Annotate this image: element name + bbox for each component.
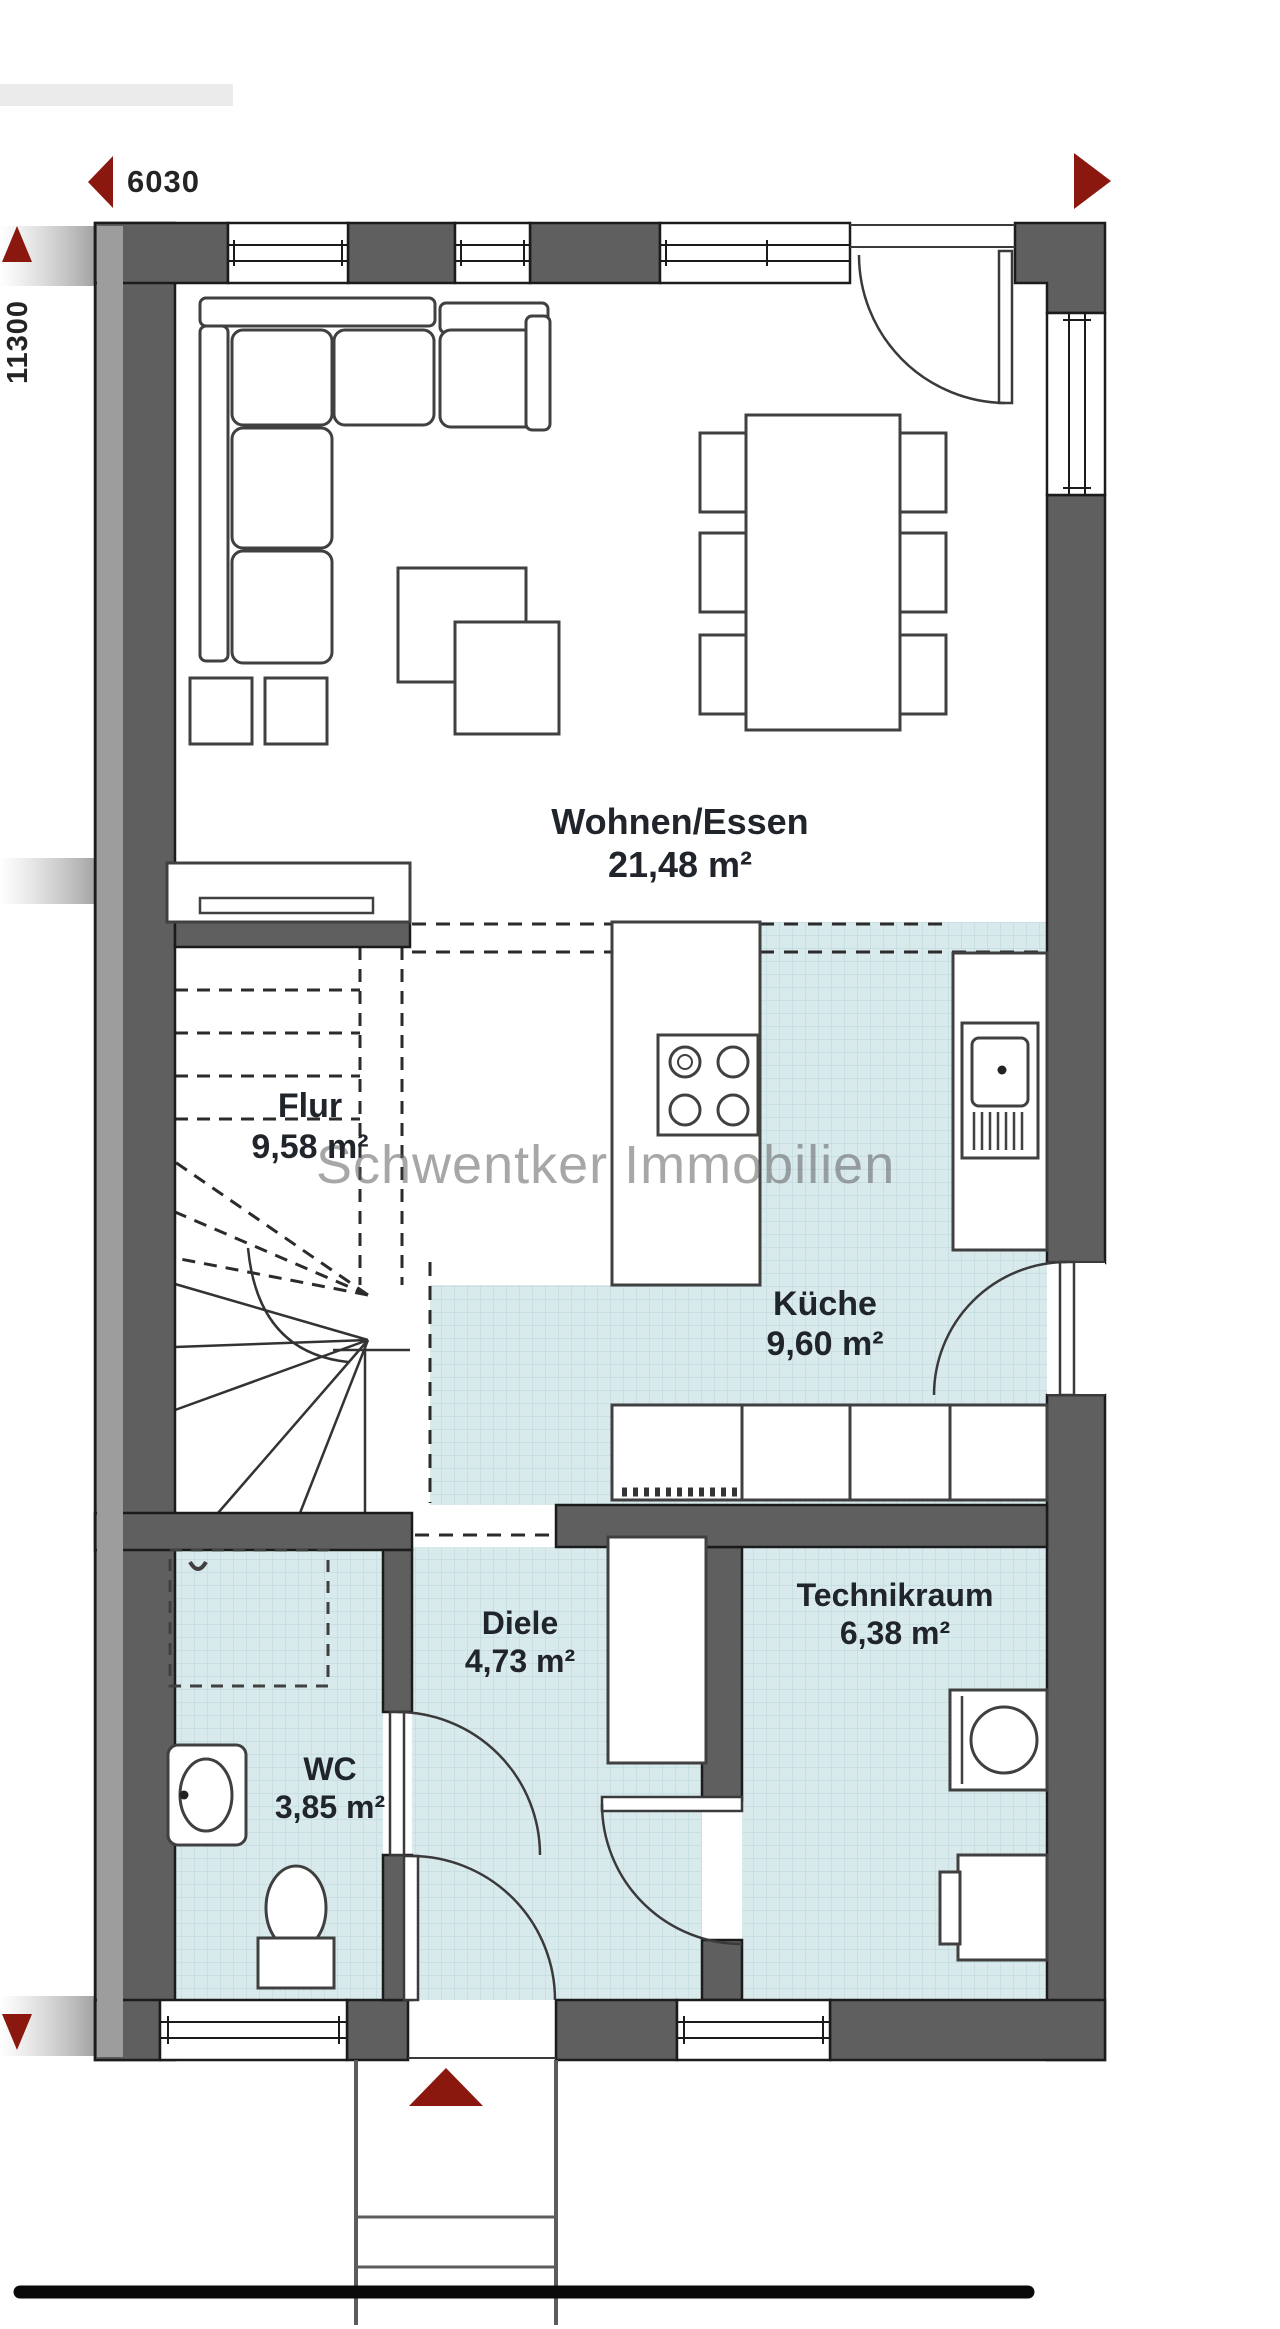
sideboard (167, 863, 410, 922)
room-name: Küche (735, 1284, 915, 1324)
faucet-dot (998, 1066, 1007, 1075)
room-name: WC (240, 1750, 420, 1788)
dimension-height: 11300 (2, 272, 35, 384)
diele-technik-wall-lower (702, 1940, 742, 2000)
room-area: 6,38 m² (763, 1614, 1027, 1652)
room-area: 9,60 m² (735, 1324, 915, 1364)
window-bottom-technik (677, 2000, 830, 2060)
right-wall-mid (1047, 495, 1105, 1263)
watermark: Schwentker Immobilien (316, 1134, 976, 1196)
window-bottom-wc (160, 2000, 347, 2060)
dim-arrow-left-icon (88, 156, 113, 208)
room-name: Diele (430, 1604, 610, 1642)
window-top-2 (455, 223, 530, 283)
room-area: 21,48 m² (500, 843, 860, 886)
top-wall-segment-b (348, 223, 455, 283)
room-area: 4,73 m² (430, 1642, 610, 1680)
coffee-tables (398, 568, 559, 734)
floorplan-canvas: Schwentker Immobilien 6030 11300 Wohnen/… (0, 0, 1280, 2329)
party-wall-light-strip (97, 226, 123, 2057)
toilet-tank (258, 1938, 334, 1988)
room-name: Wohnen/Essen (500, 800, 860, 843)
diele-cabinet (608, 1537, 706, 1763)
terrace-door (850, 225, 1015, 403)
room-name: Technikraum (763, 1576, 1027, 1614)
wc-diele-wall-upper (383, 1550, 412, 1712)
room-label-kueche: Küche 9,60 m² (735, 1284, 915, 1364)
diele-technik-wall-upper (702, 1547, 742, 1800)
kitchen-island (612, 922, 760, 1285)
bottom-wall-segment-b (347, 2000, 408, 2060)
dining-set (700, 415, 946, 730)
wc-top-wall (95, 1513, 412, 1550)
top-wall-segment-c (530, 223, 660, 283)
dim-arrow-right-icon (1074, 153, 1111, 209)
drainer-lines (974, 1112, 1022, 1150)
room-label-wohnen: Wohnen/Essen 21,48 m² (500, 800, 860, 886)
entrance-marker-icon (409, 2068, 483, 2106)
appliance (958, 1855, 1047, 1960)
bottom-wall-segment-d (830, 2000, 1105, 2060)
room-label-diele: Diele 4,73 m² (430, 1604, 610, 1680)
window-top-1 (228, 223, 348, 283)
room-label-wc: WC 3,85 m² (240, 1750, 420, 1826)
side-stools (190, 678, 327, 744)
room-area: 3,85 m² (240, 1788, 420, 1826)
armchair (440, 303, 550, 430)
right-wall-low (1047, 1395, 1105, 2060)
top-right-corner-wall (1015, 223, 1105, 313)
room-label-technikraum: Technikraum 6,38 m² (763, 1576, 1027, 1652)
dining-table (746, 415, 900, 730)
kitchen-counter-right (953, 953, 1047, 1250)
bottom-wall-segment-c (556, 2000, 677, 2060)
room-area: 9,58 m² (215, 1127, 405, 1168)
living-stair-wall (175, 920, 410, 947)
room-name: Flur (215, 1086, 405, 1127)
window-right (1047, 313, 1105, 495)
window-top-3 (660, 223, 850, 283)
staircase (175, 947, 410, 1513)
dimension-width: 6030 (127, 164, 200, 200)
room-label-flur: Flur 9,58 m² (215, 1086, 405, 1168)
kitchen-counter-bottom (612, 1405, 1047, 1500)
